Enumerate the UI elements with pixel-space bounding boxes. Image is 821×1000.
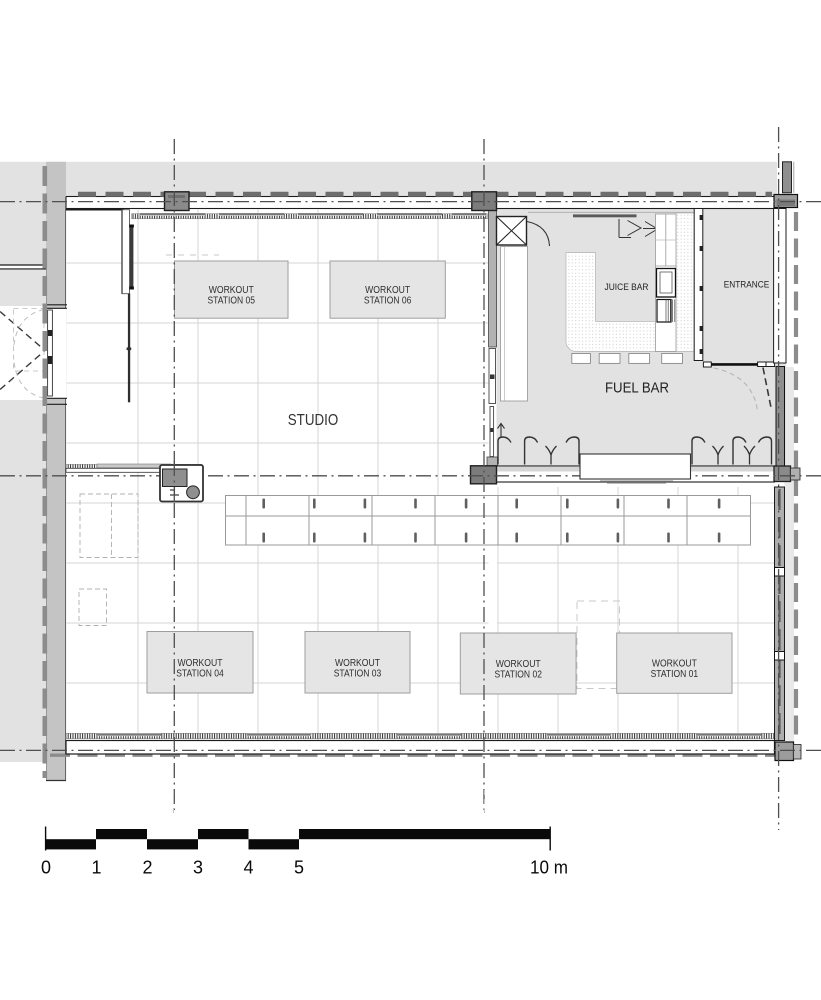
- svg-text:FUEL BAR: FUEL BAR: [605, 380, 669, 397]
- svg-text:WORKOUT: WORKOUT: [652, 659, 697, 670]
- svg-text:WORKOUT: WORKOUT: [335, 658, 380, 669]
- svg-text:STATION 02: STATION 02: [494, 670, 542, 681]
- svg-text:STATION 03: STATION 03: [334, 668, 382, 679]
- svg-text:10 m: 10 m: [530, 858, 568, 878]
- svg-text:4: 4: [243, 858, 253, 878]
- svg-text:WORKOUT: WORKOUT: [178, 658, 223, 669]
- svg-text:JUICE BAR: JUICE BAR: [605, 282, 649, 293]
- svg-text:1: 1: [91, 858, 101, 878]
- svg-text:ENTRANCE: ENTRANCE: [724, 280, 770, 291]
- svg-text:5: 5: [294, 858, 304, 878]
- svg-text:STATION 05: STATION 05: [208, 296, 256, 307]
- svg-text:STUDIO: STUDIO: [288, 412, 339, 429]
- svg-text:STATION 01: STATION 01: [651, 669, 699, 680]
- svg-text:WORKOUT: WORKOUT: [365, 285, 410, 296]
- svg-text:2: 2: [142, 858, 152, 878]
- svg-text:WORKOUT: WORKOUT: [496, 659, 541, 670]
- svg-text:0: 0: [41, 858, 51, 878]
- svg-text:3: 3: [193, 858, 203, 878]
- svg-text:STATION 06: STATION 06: [364, 296, 412, 307]
- svg-text:WORKOUT: WORKOUT: [209, 285, 254, 296]
- svg-text:STATION 04: STATION 04: [176, 668, 224, 679]
